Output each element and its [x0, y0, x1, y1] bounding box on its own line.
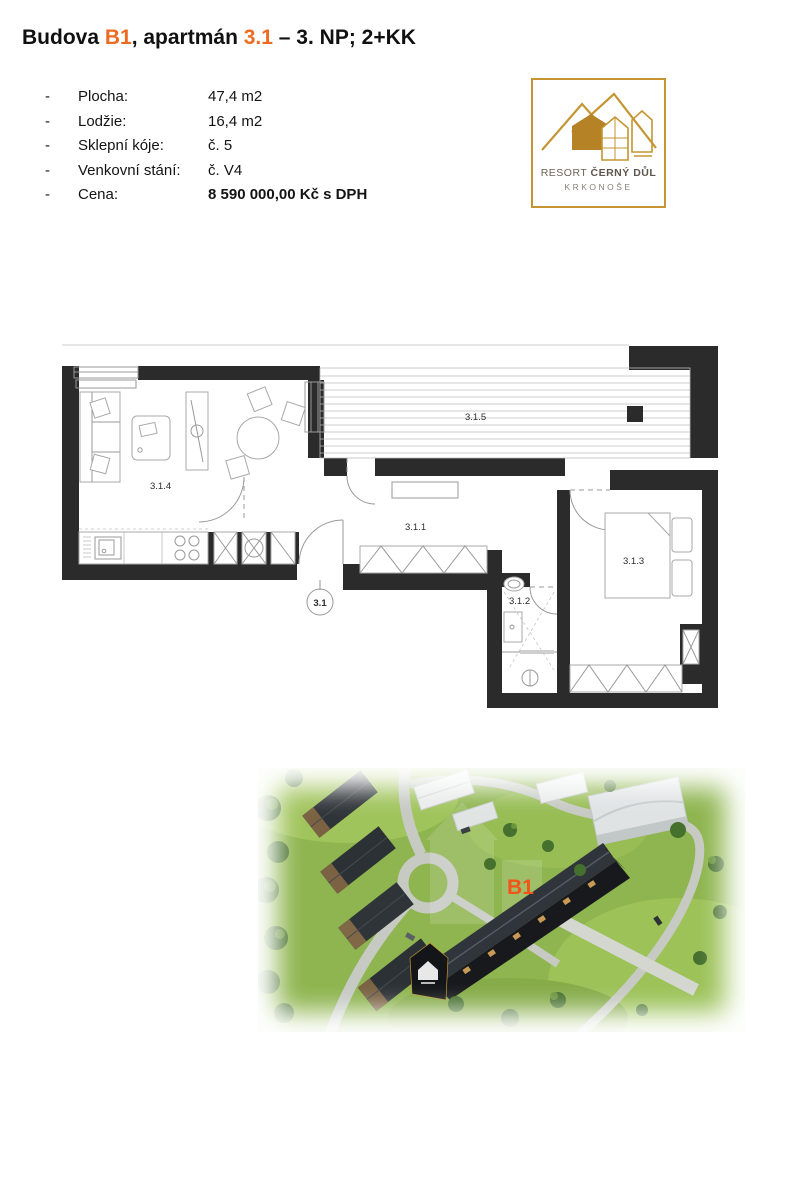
- detail-row-area: - Plocha: 47,4 m2: [45, 88, 367, 113]
- bullet-dash: -: [45, 186, 78, 203]
- resort-logo: RESORT ČERNÝ DŮL KRKONOŠE: [531, 78, 666, 208]
- detail-row-cellar: - Sklepní kóje: č. 5: [45, 137, 367, 162]
- detail-row-loggia: - Lodžie: 16,4 m2: [45, 113, 367, 138]
- dining-chair: [247, 387, 272, 412]
- title-part1: Budova: [22, 26, 105, 49]
- dining-chair: [281, 402, 305, 426]
- door-arc-hall: [347, 476, 375, 504]
- sofa-pillow: [90, 454, 110, 474]
- bath-sink: [504, 612, 522, 642]
- title-part3: – 3. NP; 2+KK: [273, 26, 416, 49]
- b1-building-label: B1: [507, 876, 534, 900]
- hall-shelf: [392, 482, 458, 498]
- property-details-list: - Plocha: 47,4 m2 - Lodžie: 16,4 m2 - Sk…: [45, 88, 367, 211]
- tall-cabinets: [214, 532, 295, 564]
- bathroom: [502, 577, 557, 686]
- entry-label: 3.1: [313, 598, 327, 609]
- title-building-code: B1: [105, 26, 132, 49]
- logo-name-bold: ČERNÝ DŮL: [591, 167, 657, 179]
- room-label-hall: 3.1.1: [405, 522, 426, 533]
- bullet-dash: -: [45, 113, 78, 130]
- resort-logo-name: RESORT ČERNÝ DŮL: [533, 167, 664, 179]
- pillow: [672, 518, 692, 552]
- room-label-loggia: 3.1.5: [465, 412, 486, 423]
- title-part2: , apartmán: [132, 26, 244, 49]
- bullet-dash: -: [45, 137, 78, 154]
- room-label-living: 3.1.4: [150, 481, 171, 492]
- detail-row-price: - Cena: 8 590 000,00 Kč s DPH: [45, 186, 367, 211]
- room-label-bathroom: 3.1.2: [509, 596, 530, 607]
- detail-label: Cena:: [78, 186, 208, 203]
- bedroom-wardrobe: [570, 665, 682, 692]
- bullet-dash: -: [45, 88, 78, 105]
- detail-label: Plocha:: [78, 88, 208, 105]
- resort-logo-subtitle: KRKONOŠE: [533, 182, 664, 192]
- resort-logo-icon: [538, 84, 660, 166]
- detail-label: Lodžie:: [78, 113, 208, 130]
- coffee-table: [132, 416, 170, 460]
- dining-chair: [226, 456, 250, 480]
- title-unit-code: 3.1: [244, 26, 273, 49]
- entry: 3.1: [299, 520, 343, 615]
- flyer-page: Budova B1, apartmán 3.1 – 3. NP; 2+KK - …: [0, 0, 808, 1183]
- detail-value: č. 5: [208, 137, 232, 154]
- kitchen: [79, 529, 295, 564]
- living-furniture: [80, 387, 305, 482]
- page-title: Budova B1, apartmán 3.1 – 3. NP; 2+KK: [22, 26, 416, 50]
- detail-value: 47,4 m2: [208, 88, 262, 105]
- shower-screen: [520, 650, 554, 654]
- pillow: [672, 560, 692, 596]
- aerial-render-image: [258, 768, 745, 1032]
- detail-value: č. V4: [208, 162, 242, 179]
- door-arc-bedroom: [570, 490, 610, 530]
- door-arc-living: [199, 477, 244, 522]
- toilet: [504, 577, 524, 591]
- loggia-deck: [320, 368, 690, 458]
- detail-label: Sklepní kóje:: [78, 137, 208, 154]
- loggia-pillar: [627, 406, 643, 422]
- logo-name-regular: RESORT: [541, 167, 591, 179]
- aerial-render: B1: [258, 768, 745, 1032]
- dining-table: [237, 417, 279, 459]
- bullet-dash: -: [45, 162, 78, 179]
- detail-label: Venkovní stání:: [78, 162, 208, 179]
- detail-value: 8 590 000,00 Kč s DPH: [208, 186, 367, 203]
- detail-value: 16,4 m2: [208, 113, 262, 130]
- detail-row-parking: - Venkovní stání: č. V4: [45, 162, 367, 187]
- door-arc-entry: [299, 520, 343, 564]
- floor-plan: 3.1 3.: [62, 340, 722, 712]
- room-label-bedroom: 3.1.3: [623, 556, 644, 567]
- bedroom: [570, 490, 699, 692]
